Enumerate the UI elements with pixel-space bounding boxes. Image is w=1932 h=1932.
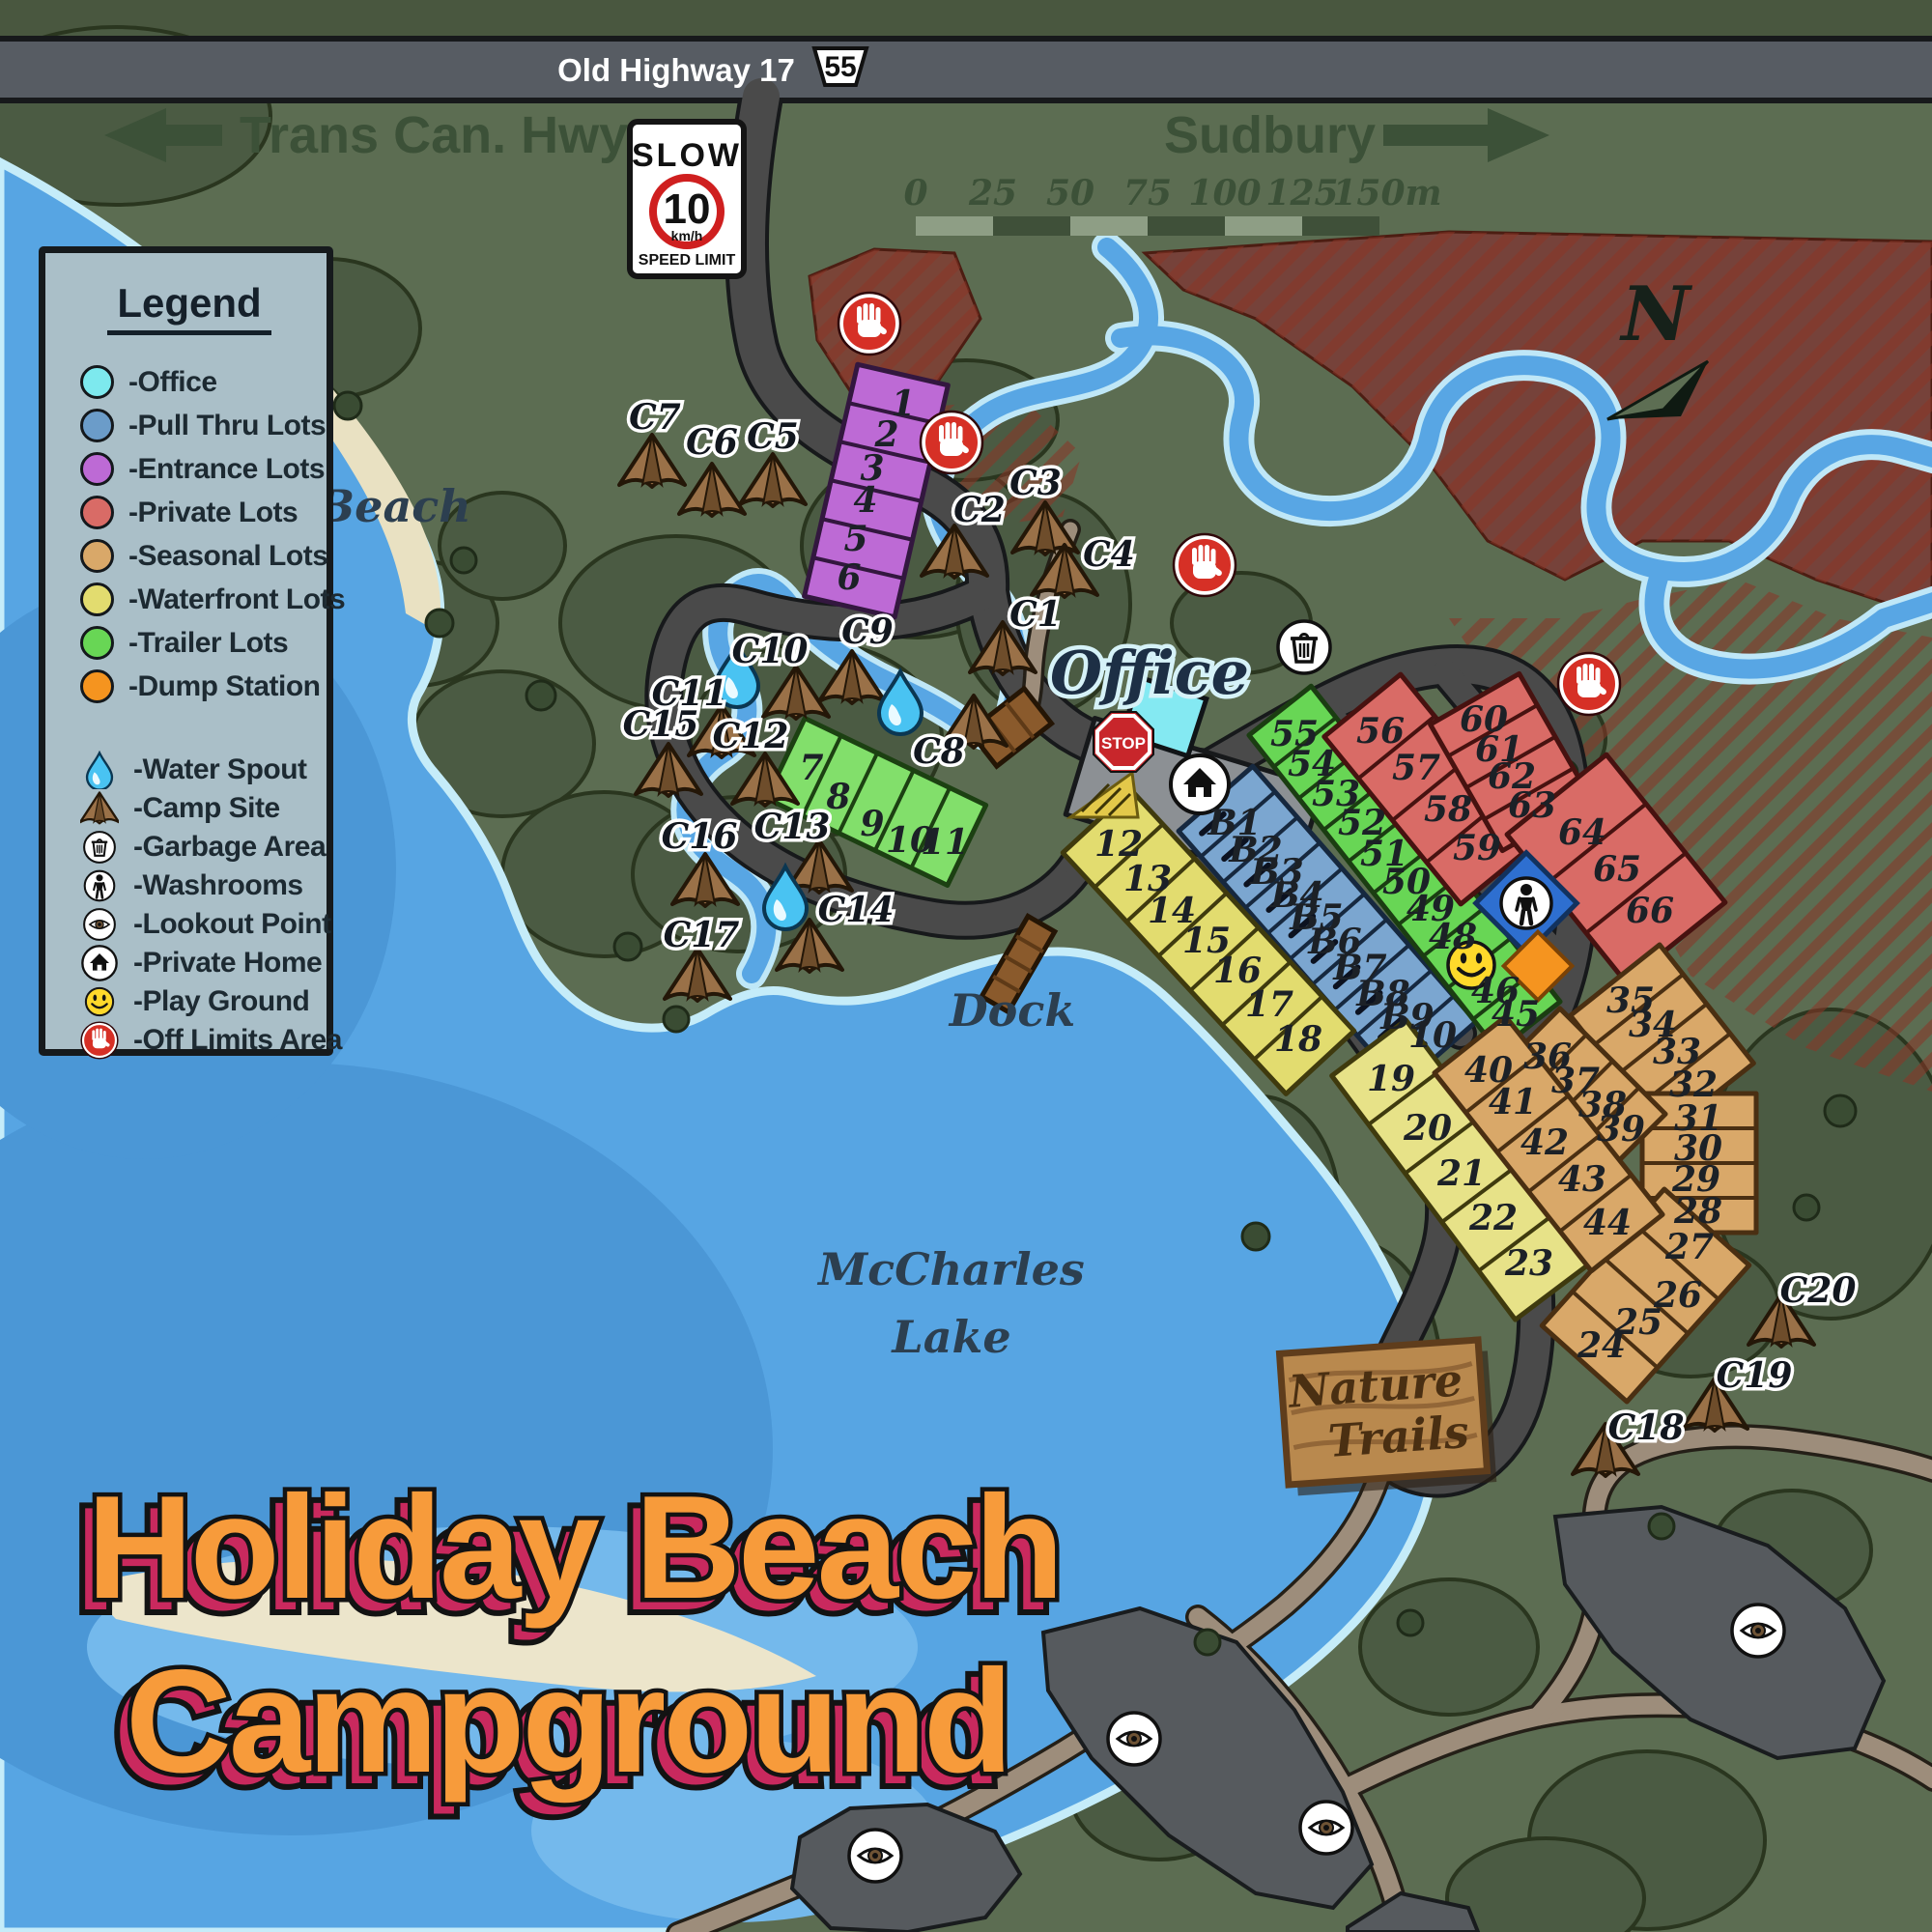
speed-limit-sign: SLOW 10 km/h SPEED LIMIT: [630, 122, 744, 276]
lake-label-1: McCharles: [816, 1243, 1085, 1295]
lot-label: 64: [1558, 812, 1606, 853]
west-direction-label: Trans Can. Hwy.: [240, 106, 639, 164]
lake-label-2: Lake: [890, 1311, 1010, 1363]
lot-label: 43: [1558, 1159, 1606, 1200]
speed-sign-slow: SLOW: [632, 137, 742, 174]
scale-tick: 50: [1046, 173, 1094, 213]
dock-label: Dock: [948, 984, 1075, 1037]
lot-label: 23: [1504, 1243, 1553, 1284]
campsite-label: C14: [818, 890, 895, 930]
legend-swatch: [80, 452, 114, 486]
lot-label: 66: [1626, 891, 1674, 931]
legend-item-label: -Dump Station: [128, 670, 320, 703]
lot-label: 65: [1593, 849, 1641, 890]
lot-label: 59: [1453, 828, 1501, 868]
off-limits-icon: [921, 412, 982, 473]
lot-label: 63: [1508, 785, 1556, 826]
lot-label: 11: [921, 822, 969, 863]
eye-icon: [80, 905, 119, 944]
campsite-label: C8: [913, 731, 965, 772]
tent-icon: [80, 789, 119, 828]
campsite-label: C7: [629, 397, 681, 438]
campsite-label: C9: [841, 611, 894, 652]
east-direction-label: Sudbury: [1164, 106, 1376, 164]
scale-tick: 25: [968, 173, 1017, 213]
lookout-icon: [1300, 1802, 1352, 1854]
speed-sign-unit: km/h: [671, 228, 703, 243]
stop-sign-text: STOP: [1101, 734, 1146, 753]
route-shield-number: 55: [824, 51, 856, 83]
legend-item-label: -Play Ground: [133, 985, 309, 1018]
lot-label: 5: [843, 519, 867, 559]
lot-label: 10: [1408, 1015, 1457, 1056]
campsite-label: C19: [1717, 1355, 1793, 1396]
legend-lot-types: -Office-Pull Thru Lots-Entrance Lots-Pri…: [80, 360, 327, 708]
scale-tick: 125: [1265, 173, 1338, 213]
campsite-label: C10: [732, 631, 809, 671]
campsite-label: C18: [1608, 1407, 1685, 1448]
lot-label: 4: [853, 480, 877, 521]
map-title: Holiday Beach Campground Holiday Beach C…: [75, 1465, 1061, 1815]
legend-item: -Play Ground: [80, 982, 327, 1021]
legend-facilities: -Water Spout-Camp Site-Garbage Area-Wash…: [80, 751, 327, 1060]
highway-label: Old Highway 17: [557, 52, 795, 88]
legend-item-label: -Private Home: [133, 947, 322, 980]
title-line-2: Campground: [126, 1639, 1010, 1804]
legend-title: Legend: [107, 280, 271, 335]
legend-item-label: -Trailer Lots: [128, 627, 288, 660]
lot-label: 20: [1403, 1108, 1452, 1149]
speed-sign-caption: SPEED LIMIT: [639, 252, 736, 269]
legend-swatch: [80, 626, 114, 660]
lot-label: 57: [1392, 748, 1440, 788]
scale-bar-segments: [916, 216, 1379, 236]
lot-label: 48: [1429, 917, 1477, 957]
legend-swatch: [80, 409, 114, 442]
hand-icon: [80, 1021, 119, 1060]
legend-item: -Waterfront Lots: [80, 578, 327, 621]
legend-swatch: [80, 669, 114, 703]
campsite-label: C20: [1780, 1270, 1857, 1311]
washrooms-icon: [1501, 878, 1551, 928]
legend-item-label: -Off Limits Area: [133, 1024, 342, 1057]
legend-item-label: -Camp Site: [133, 792, 280, 825]
off-limits-icon: [838, 293, 900, 355]
legend-swatch: [80, 365, 114, 399]
route-shield: 55: [814, 48, 867, 85]
legend-swatch: [80, 582, 114, 616]
lot-label: 21: [1436, 1153, 1486, 1194]
lot-label: 56: [1356, 711, 1405, 752]
lot-label: 7: [799, 748, 823, 788]
home-icon: [80, 944, 119, 982]
legend-item: -Washrooms: [80, 867, 327, 905]
campsite-label: C4: [1083, 534, 1135, 575]
title-line-1: Holiday Beach: [87, 1465, 1061, 1630]
legend-swatch: [80, 496, 114, 529]
legend-item: -Camp Site: [80, 789, 327, 828]
legend-item: -Office: [80, 360, 327, 404]
legend-item-label: -Water Spout: [133, 753, 307, 786]
legend-item: -Pull Thru Lots: [80, 404, 327, 447]
campsite-label: C3: [1009, 463, 1062, 503]
lot-label: 6: [837, 557, 861, 598]
smiley-icon: [80, 982, 119, 1021]
campsite-label: C6: [686, 422, 738, 463]
legend-item: -Entrance Lots: [80, 447, 327, 491]
legend-item-label: -Office: [128, 366, 217, 399]
lot-label: 27: [1664, 1227, 1714, 1267]
lot-label: 24: [1577, 1325, 1626, 1366]
lot-label: 9: [860, 804, 884, 844]
lot-label: 45: [1492, 994, 1540, 1035]
nature-trails-sign: Nature Trails: [1280, 1339, 1497, 1496]
legend-item-label: -Garbage Area: [133, 831, 326, 864]
legend-item: -Trailer Lots: [80, 621, 327, 665]
legend-item: -Water Spout: [80, 751, 327, 789]
lot-label: 18: [1274, 1019, 1322, 1060]
lookout-icon: [849, 1830, 901, 1882]
legend-item-label: -Waterfront Lots: [128, 583, 345, 616]
scale-tick: 100: [1188, 173, 1261, 213]
lot-label: 28: [1673, 1191, 1722, 1232]
lot-label: 44: [1583, 1203, 1632, 1243]
lot-label: 42: [1520, 1122, 1569, 1163]
legend-item-label: -Washrooms: [133, 869, 303, 902]
legend-item: -Private Lots: [80, 491, 327, 534]
legend-item-label: -Pull Thru Lots: [128, 410, 326, 442]
beach-label: Beach: [315, 480, 470, 532]
washroom-icon: [80, 867, 119, 905]
lot-label: 58: [1424, 789, 1472, 830]
legend-item-label: -Lookout Point: [133, 908, 331, 941]
campsite-label: C13: [754, 807, 831, 847]
garbage-icon: [80, 828, 119, 867]
lot-label: 39: [1597, 1109, 1645, 1150]
campsite-label: C15: [623, 704, 699, 745]
scale-tick: 150m: [1332, 173, 1441, 213]
legend-item-label: -Entrance Lots: [128, 453, 325, 486]
campsite-label: C2: [953, 490, 1006, 530]
droplet-icon: [80, 751, 119, 789]
off-limits-icon: [1558, 653, 1620, 715]
office-label: Office: [1050, 638, 1249, 708]
lot-label: 22: [1468, 1198, 1518, 1238]
garbage-icon: [1278, 621, 1330, 673]
scale-tick: 0: [903, 173, 927, 213]
lookout-icon: [1732, 1605, 1784, 1657]
legend-item: -Off Limits Area: [80, 1021, 327, 1060]
legend-item-label: -Seasonal Lots: [128, 540, 327, 573]
legend-item: -Seasonal Lots: [80, 534, 327, 578]
speed-sign-limit: 10: [664, 185, 711, 233]
sign-text-2: Trails: [1326, 1406, 1470, 1467]
legend-item: -Dump Station: [80, 665, 327, 708]
campsite-label: C16: [662, 816, 738, 857]
lot-label: 41: [1489, 1082, 1537, 1122]
legend-panel: Legend -Office-Pull Thru Lots-Entrance L…: [39, 246, 333, 1056]
east-direction: Sudbury: [1164, 106, 1549, 164]
legend-item-label: -Private Lots: [128, 497, 298, 529]
legend-swatch: [80, 539, 114, 573]
compass-north-label: N: [1618, 270, 1692, 358]
campsite-label: C1: [1009, 594, 1062, 635]
legend-item: -Lookout Point: [80, 905, 327, 944]
legend-item: -Private Home: [80, 944, 327, 982]
campsite-label: C5: [747, 416, 799, 457]
lot-label: 19: [1367, 1059, 1415, 1099]
scale-tick: 75: [1123, 173, 1172, 213]
stop-sign: STOP: [1094, 712, 1153, 772]
legend-item: -Garbage Area: [80, 828, 327, 867]
campground-map: STOP 1234567891011B1B2B3B4B5B6B7B8B91055…: [0, 0, 1932, 1932]
off-limits-icon: [1174, 534, 1236, 596]
campsite-label: C17: [664, 915, 740, 955]
lookout-icon: [1108, 1713, 1160, 1765]
campsite-label: C12: [713, 716, 789, 756]
